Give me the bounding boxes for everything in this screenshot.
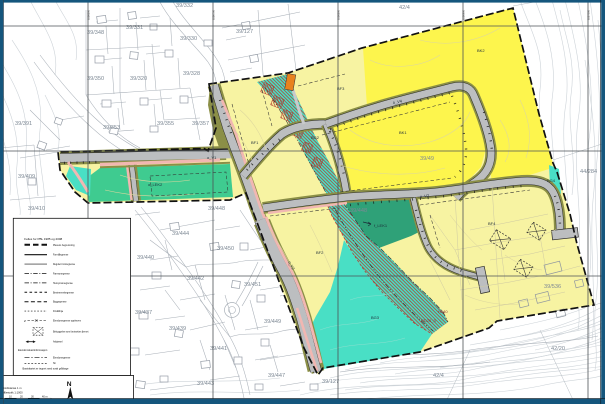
svg-text:39/439: 39/439 (169, 326, 186, 332)
svg-text:Byggegrense: Byggegrense (53, 301, 67, 304)
svg-text:6586600: 6586600 (87, 9, 91, 20)
svg-text:H540: H540 (438, 309, 448, 314)
svg-text:39/450: 39/450 (217, 246, 234, 252)
svg-text:o_V1: o_V1 (207, 155, 217, 160)
svg-text:39/444: 39/444 (172, 231, 189, 237)
svg-text:Eiendomskartinformasjon: Eiendomskartinformasjon (18, 348, 48, 352)
svg-text:39/441: 39/441 (210, 346, 227, 352)
svg-text:6587000: 6587000 (587, 9, 591, 20)
svg-text:39/437: 39/437 (135, 310, 152, 316)
svg-text:39/355: 39/355 (157, 121, 174, 127)
svg-text:42/4: 42/4 (399, 5, 410, 11)
svg-text:BK1: BK1 (399, 130, 407, 135)
svg-text:39/536: 39/536 (544, 284, 561, 290)
svg-text:Eiendomsgrense oppheves: Eiendomsgrense oppheves (53, 320, 82, 323)
svg-text:Planens begrensning: Planens begrensning (53, 244, 75, 247)
svg-text:Formålsgrense: Formålsgrense (53, 254, 69, 257)
svg-text:39/127: 39/127 (322, 379, 339, 385)
svg-text:39/410: 39/410 (28, 206, 45, 212)
svg-text:Eiendomsgrense: Eiendomsgrense (53, 357, 71, 360)
svg-text:39/332: 39/332 (176, 3, 193, 9)
svg-text:39/447: 39/447 (268, 373, 285, 379)
svg-text:Bebyggelse som forutsettes fje: Bebyggelse som forutsettes fjernet (53, 331, 89, 334)
svg-text:RD20_3: RD20_3 (421, 318, 436, 323)
svg-text:BF2: BF2 (316, 250, 324, 255)
svg-text:39/448: 39/448 (208, 206, 225, 212)
svg-text:39/348: 39/348 (87, 30, 104, 36)
svg-text:Regulert tomtegrense: Regulert tomtegrense (53, 263, 76, 266)
svg-text:42/20: 42/20 (551, 346, 565, 352)
svg-text:39/443: 39/443 (197, 381, 214, 387)
svg-text:39/350: 39/350 (87, 76, 104, 82)
svg-text:39/448: 39/448 (350, 208, 367, 214)
svg-text:o_LEK2: o_LEK2 (148, 182, 163, 187)
svg-text:39/442: 39/442 (187, 276, 204, 282)
svg-text:42/4: 42/4 (433, 373, 444, 379)
svg-text:BG2: BG2 (311, 135, 320, 140)
svg-text:ekvidistanse 1 m: ekvidistanse 1 m (2, 386, 23, 390)
svg-text:N: N (67, 381, 72, 388)
svg-text:39/330: 39/330 (180, 36, 197, 42)
svg-text:BF4: BF4 (488, 221, 496, 226)
svg-text:39/49: 39/49 (420, 156, 434, 162)
svg-text:6586900: 6586900 (462, 9, 466, 20)
svg-text:44/284: 44/284 (580, 169, 597, 175)
svg-text:Bestemmelsegrense: Bestemmelsegrense (53, 291, 75, 294)
svg-text:39/357: 39/357 (192, 121, 209, 127)
svg-text:6586700: 6586700 (212, 9, 216, 20)
svg-text:39/127: 39/127 (236, 29, 253, 35)
svg-text:Basiskartet er tegnet med svak: Basiskartet er tegnet med svak gråfarge (23, 367, 70, 371)
svg-text:39/440: 39/440 (137, 255, 154, 261)
svg-text:Felles for PBL 1985 og 2008: Felles for PBL 1985 og 2008 (24, 237, 62, 241)
svg-text:BG4: BG4 (547, 178, 556, 183)
svg-text:målestokk 1:1000: målestokk 1:1000 (2, 391, 24, 395)
svg-text:Faresonegrense: Faresonegrense (53, 273, 70, 276)
svg-text:6586800: 6586800 (337, 9, 341, 20)
svg-text:BK2: BK2 (477, 48, 485, 53)
svg-text:39/409: 39/409 (18, 174, 35, 180)
svg-text:BF1: BF1 (251, 140, 259, 145)
svg-text:39/353: 39/353 (103, 125, 120, 131)
svg-text:BG3: BG3 (371, 315, 380, 320)
svg-text:Z: Z (24, 319, 26, 323)
svg-text:Avkjørsel: Avkjørsel (53, 341, 63, 344)
svg-text:39/391: 39/391 (15, 121, 32, 127)
svg-text:Frisiktlinje: Frisiktlinje (53, 310, 64, 313)
svg-text:Hensynsonegrense: Hensynsonegrense (53, 282, 74, 285)
svg-text:39/449: 39/449 (264, 319, 281, 325)
svg-text:39/451: 39/451 (244, 282, 261, 288)
svg-text:39/328: 39/328 (183, 71, 200, 77)
svg-text:39/320: 39/320 (130, 76, 147, 82)
svg-text:f_LEK1: f_LEK1 (374, 223, 388, 228)
